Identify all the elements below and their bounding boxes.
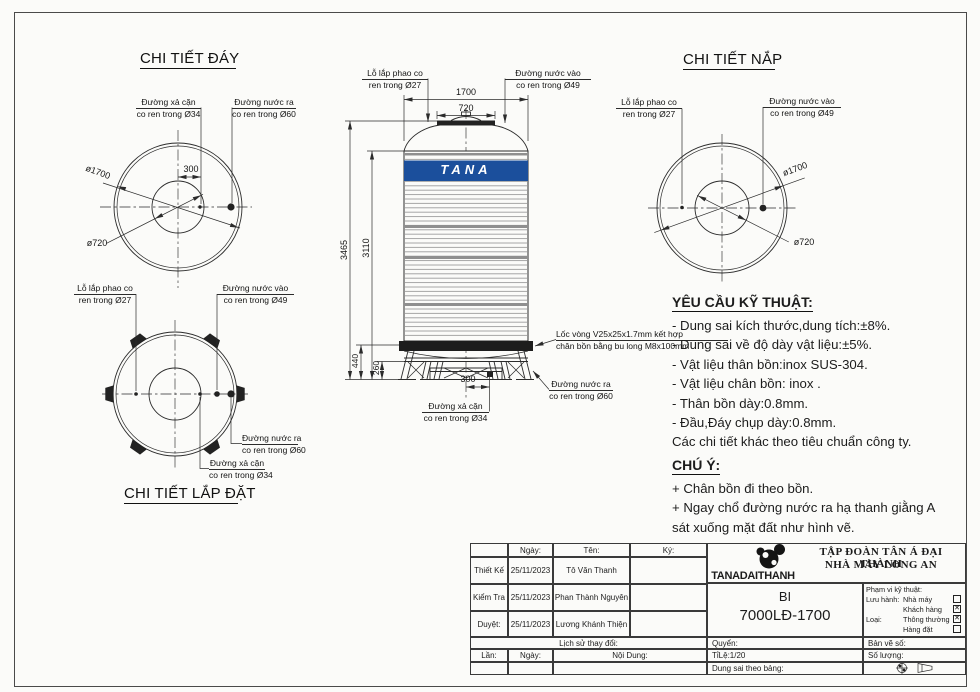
tb-col-sign: Ký: <box>630 543 707 557</box>
detail-day-title: CHI TIẾT ĐÁY <box>140 50 236 69</box>
tb-date: 25/11/2023 <box>508 584 553 611</box>
tb-empty <box>470 662 508 675</box>
company-name-line2: NHÀ MÁY LONG AN <box>800 559 962 571</box>
tech-item: Các chi tiết khác theo tiêu chuẩn công t… <box>672 432 964 451</box>
logo-wordmark: TANADAITHANH <box>707 570 799 582</box>
tb-name: Lương Khánh Thiện <box>553 611 630 637</box>
dim-720: 720 <box>448 103 484 113</box>
tb-symbols-cell <box>863 662 966 675</box>
callout-day-xa-can: Đường xả cặn co ren trong Ø34 <box>136 97 201 120</box>
tech-item: - Vật liệu chân bồn: inox . <box>672 374 964 393</box>
tb-date: 25/11/2023 <box>508 557 553 584</box>
checkbox-checked: ✕ <box>953 605 961 613</box>
callout-line2: co ren trong Ø34 <box>136 109 201 120</box>
tb-ban-ve-so: Bản vẽ số: <box>863 637 966 649</box>
tb-role: Duyệt: <box>470 611 508 637</box>
callout-tank-nuoc-ra: Đường nước ra co ren trong Ø60 <box>549 379 613 402</box>
callout-tank-phao: Lỗ lắp phao co ren trong Ø27 <box>362 68 428 91</box>
callout-lapdat-nuoc-ra: Đường nước ra co ren trong Ø60 <box>242 433 298 456</box>
dim-260: 260 <box>371 353 381 383</box>
detail-nap-circle <box>648 107 805 282</box>
callout-lapdat-phao: Lỗ lắp phao co ren trong Ø27 <box>74 283 136 306</box>
scope-row: Khách hàng ✕ <box>866 604 961 614</box>
tech-item: - Đầu,Đáy chụp dày:0.8mm. <box>672 413 964 432</box>
tb-history: Lịch sử thay đổi: <box>470 637 707 649</box>
note-item: + Ngay chổ đường nước ra hạ thanh giằng … <box>672 498 964 517</box>
tb-col-date: Ngày: <box>508 543 553 557</box>
tb-empty <box>553 662 707 675</box>
scope-row: Hàng đặt <box>866 624 961 634</box>
checkbox-checked: ✕ <box>953 615 961 623</box>
callout-lapdat-xa-can: Đường xả cặn co ren trong Ø34 <box>209 458 265 481</box>
detail-lapdat-title: CHI TIẾT LẮP ĐẶT <box>124 485 238 504</box>
callout-nap-phao: Lỗ lắp phao co ren trong Ø27 <box>616 97 682 120</box>
tb-ti-le: TỉLệ:1/20 <box>707 649 863 662</box>
dim-dia720-nap: ø720 <box>789 237 819 247</box>
callout-nap-nuoc-vao: Đường nước vào co ren trong Ø49 <box>763 96 841 119</box>
tb-rev: Lần: <box>470 649 508 662</box>
callout-tank-xa-can: Đường xả cặn co ren trong Ø34 <box>422 401 489 424</box>
tb-rev-date: Ngày: <box>508 649 553 662</box>
scope-row: Lưu hành: Nhà máy <box>866 594 961 604</box>
technical-requirements: YÊU CẦU KỸ THUẬT: - Dung sai kích thước,… <box>672 294 964 537</box>
tb-so-luong: Số lượng: <box>863 649 966 662</box>
dim-300-tank: 300 <box>455 374 481 384</box>
drawing-code-line2: 7000LĐ-1700 <box>707 607 863 624</box>
tank-brand-label: TANA <box>404 162 528 180</box>
tb-cell-empty <box>470 543 508 557</box>
dim-dia720-day: ø720 <box>82 238 112 248</box>
note-item: sát xuống mặt đất như hình vẽ. <box>672 518 964 537</box>
drawing-code-line1: BI <box>707 589 863 604</box>
tb-empty <box>508 662 553 675</box>
tech-item: - Vật liệu thân bồn:inox SUS-304. <box>672 355 964 374</box>
tb-name: Tô Văn Thanh <box>553 557 630 584</box>
tech-item: - Dung sai về độ dày vật liệu:±5%. <box>672 335 964 354</box>
tb-quyen: Quyển: <box>707 637 863 649</box>
tank-elevation <box>398 108 534 398</box>
dim-3110: 3110 <box>361 231 371 265</box>
callout-lapdat-nuoc-vao: Đường nước vào co ren trong Ø49 <box>217 283 294 306</box>
checkbox <box>953 595 961 603</box>
dim-1700: 1700 <box>446 87 486 97</box>
dim-3465: 3465 <box>339 233 349 267</box>
checkbox <box>953 625 961 633</box>
tb-content: Nội Dung: <box>553 649 707 662</box>
callout-tank-nuoc-vao: Đường nước vào co ren trong Ø49 <box>505 68 591 91</box>
tb-sign <box>630 584 707 611</box>
detail-day-circle <box>100 108 252 289</box>
dim-440: 440 <box>350 346 360 376</box>
tb-col-name: Tên: <box>553 543 630 557</box>
callout-day-nuoc-ra: Đường nước ra co ren trong Ø60 <box>232 97 296 120</box>
tb-date: 25/11/2023 <box>508 611 553 637</box>
callout-line1: Đường xả cặn <box>136 97 201 109</box>
tb-dung-sai: Dung sai theo bảng: <box>707 662 863 675</box>
tb-role: Kiểm Tra <box>470 584 508 611</box>
scope-title: Phạm vi kỹ thuật: <box>866 585 922 594</box>
note-heading: CHÚ Ý: <box>672 457 720 475</box>
tech-heading: YÊU CẦU KỸ THUẬT: <box>672 294 813 312</box>
scope-row: Loại: Thông thường ✕ <box>866 614 961 624</box>
tb-role: Thiết Kế <box>470 557 508 584</box>
drawing-sheet: CHI TIẾT ĐÁY CHI TIẾT LẮP ĐẶT CHI TIẾT N… <box>0 0 980 692</box>
dim-300-day: 300 <box>178 164 204 174</box>
tech-item: - Thân bồn dày:0.8mm. <box>672 394 964 413</box>
detail-lapdat-circle <box>102 294 248 469</box>
tech-item: - Dung sai kích thước,dung tích:±8%. <box>672 316 964 335</box>
detail-nap-title: CHI TIẾT NẮP <box>683 51 775 70</box>
tb-sign <box>630 611 707 637</box>
note-item: + Chân bồn đi theo bồn. <box>672 479 964 498</box>
tb-name: Phan Thành Nguyên <box>553 584 630 611</box>
tb-sign <box>630 557 707 584</box>
